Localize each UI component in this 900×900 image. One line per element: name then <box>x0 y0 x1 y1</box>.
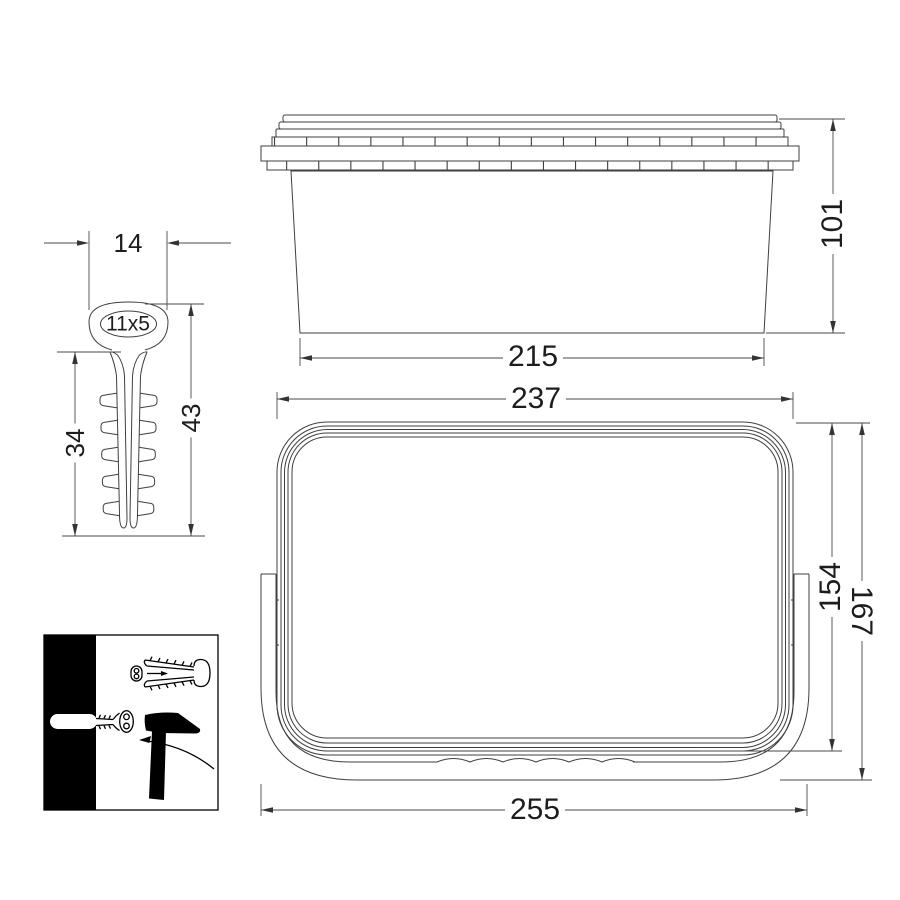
lid-outline-4 <box>288 433 782 743</box>
wall-plug-icon <box>131 657 210 691</box>
lid-outline-5 <box>292 437 778 738</box>
lid-step-3 <box>276 129 784 137</box>
lid-step-2 <box>279 122 781 129</box>
dim-plug-width-label: 14 <box>109 230 148 256</box>
lid-lower-rib-band <box>267 161 793 170</box>
plug-profile-drawing <box>44 231 231 536</box>
lid-outline-2 <box>281 426 789 751</box>
dim-plug-total-length-label: 43 <box>178 399 204 438</box>
handle-grip-scallops <box>437 759 635 763</box>
dim-plug-shaft-length-label: 34 <box>62 424 88 463</box>
technical-drawing-canvas <box>0 0 900 900</box>
lid-upper-rib-band <box>272 137 788 146</box>
dim-top-outer-depth-label: 167 <box>846 581 876 641</box>
lid-top <box>283 115 777 122</box>
side-view-drawing <box>261 115 845 366</box>
lid-outline-3 <box>285 430 786 748</box>
dim-side-height-label: 101 <box>818 194 848 254</box>
dim-top-lid-width-label: 237 <box>506 384 566 414</box>
container-body-side <box>291 171 773 333</box>
lid-outline-1 <box>277 422 793 755</box>
install-instruction-icon <box>44 635 218 810</box>
lid-flange <box>261 146 799 161</box>
technical-drawing-page: 14 11x5 34 43 215 101 237 154 167 255 <box>0 0 900 900</box>
top-view-drawing <box>261 392 872 816</box>
dim-plug-hole-label: 11x5 <box>106 314 150 335</box>
hammer-icon <box>145 713 201 800</box>
dim-top-overall-width-label: 255 <box>505 795 565 825</box>
dim-side-bottom-width-label: 215 <box>503 342 563 372</box>
dim-top-inner-depth-label: 154 <box>816 557 846 617</box>
carry-handle <box>261 574 809 780</box>
